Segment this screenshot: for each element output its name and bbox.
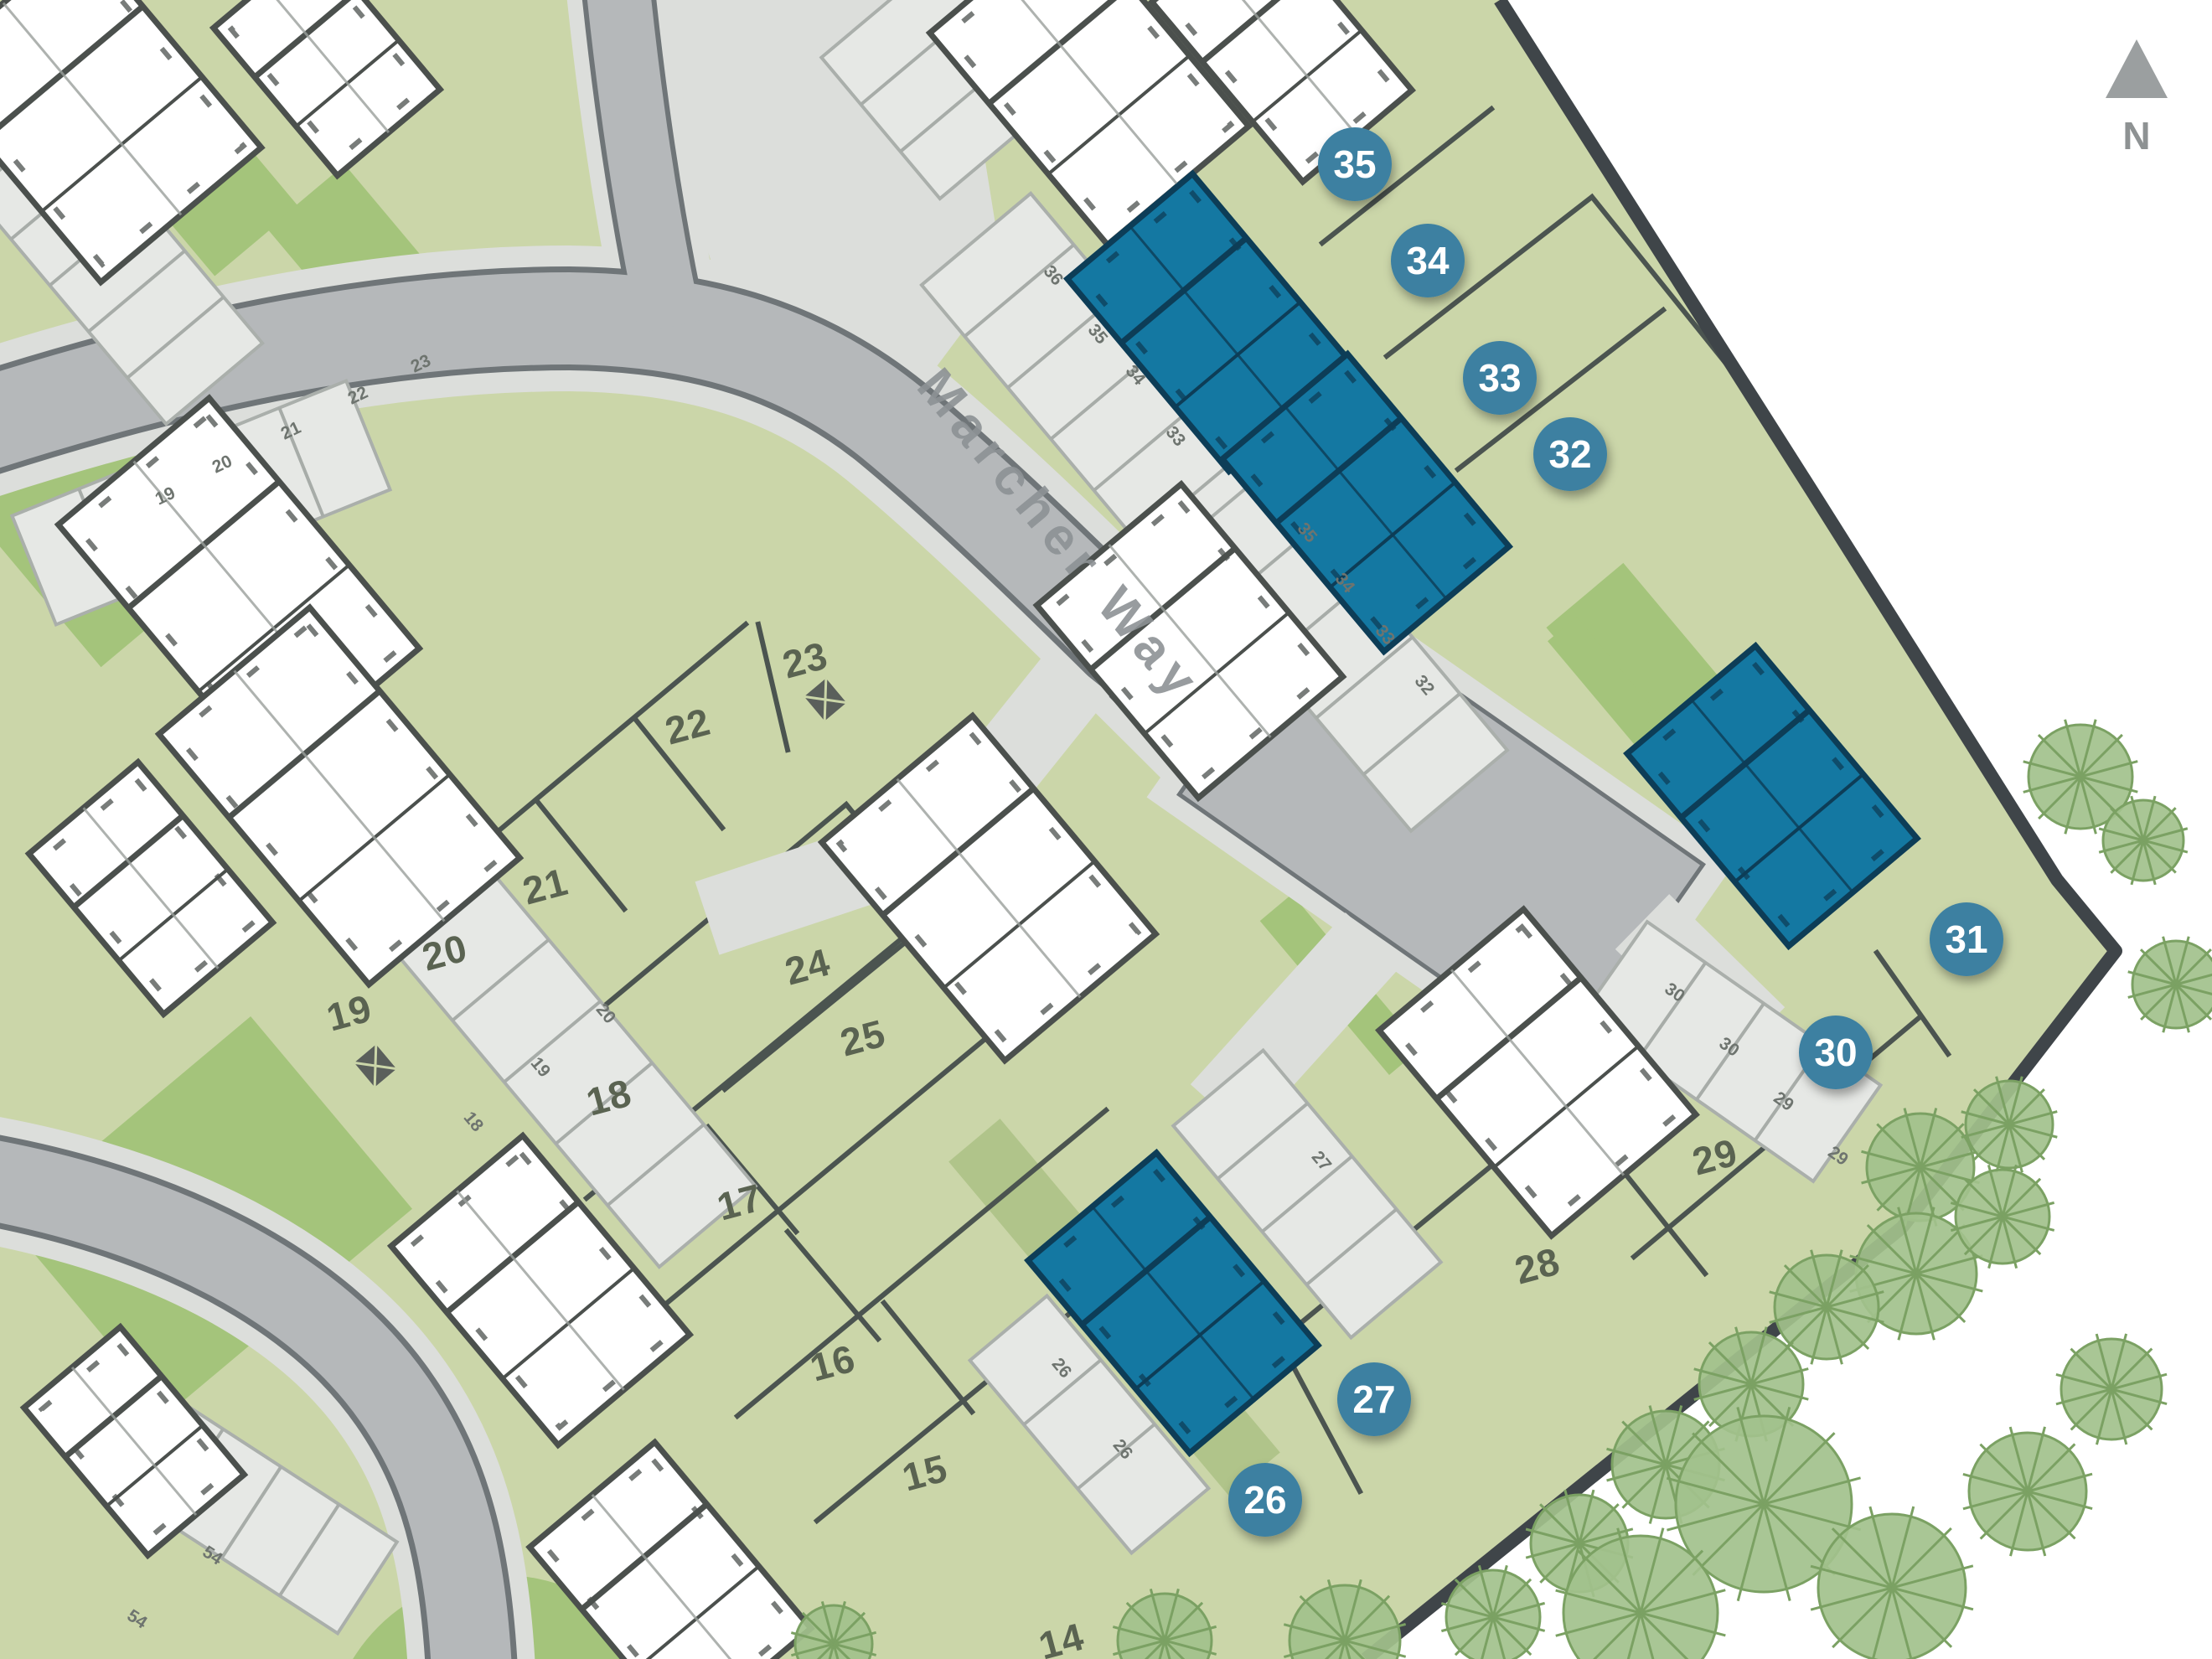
tree-icon (1951, 1165, 2054, 1268)
tree-icon (1441, 1565, 1544, 1659)
plot-badge[interactable]: 33 (1463, 341, 1537, 415)
site-plan-page: 1920212223181920363534333534333230302929… (0, 0, 2212, 1659)
plot-badge[interactable]: 35 (1318, 127, 1392, 201)
plot-badge[interactable]: 34 (1391, 224, 1465, 297)
plot-badge-number: 30 (1814, 1031, 1857, 1074)
plot-badge-number: 35 (1333, 142, 1376, 186)
tree-icon (2056, 1334, 2167, 1445)
plot-badge[interactable]: 30 (1799, 1016, 1873, 1089)
plot-badge-number: 27 (1352, 1377, 1395, 1421)
tree-icon (1961, 1077, 2058, 1173)
plot-badge[interactable]: 27 (1337, 1362, 1411, 1436)
plot-badge-number: 31 (1945, 917, 1987, 961)
tree-icon (2099, 796, 2188, 885)
tree-icon (1963, 1427, 2092, 1556)
plot-badge-number: 32 (1548, 432, 1591, 476)
plot-badge[interactable]: 31 (1930, 902, 2003, 976)
plot-badge-number: 34 (1406, 239, 1450, 282)
plot-badge-number: 26 (1243, 1478, 1286, 1522)
plot-badge-number: 33 (1478, 356, 1521, 400)
plot-badge[interactable]: 26 (1228, 1463, 1302, 1537)
tree-icon (1811, 1507, 1973, 1659)
site-plan-map: 1920212223181920363534333534333230302929… (0, 0, 2212, 1659)
plot-badge[interactable]: 32 (1533, 417, 1607, 491)
north-arrow-label: N (2122, 114, 2150, 158)
